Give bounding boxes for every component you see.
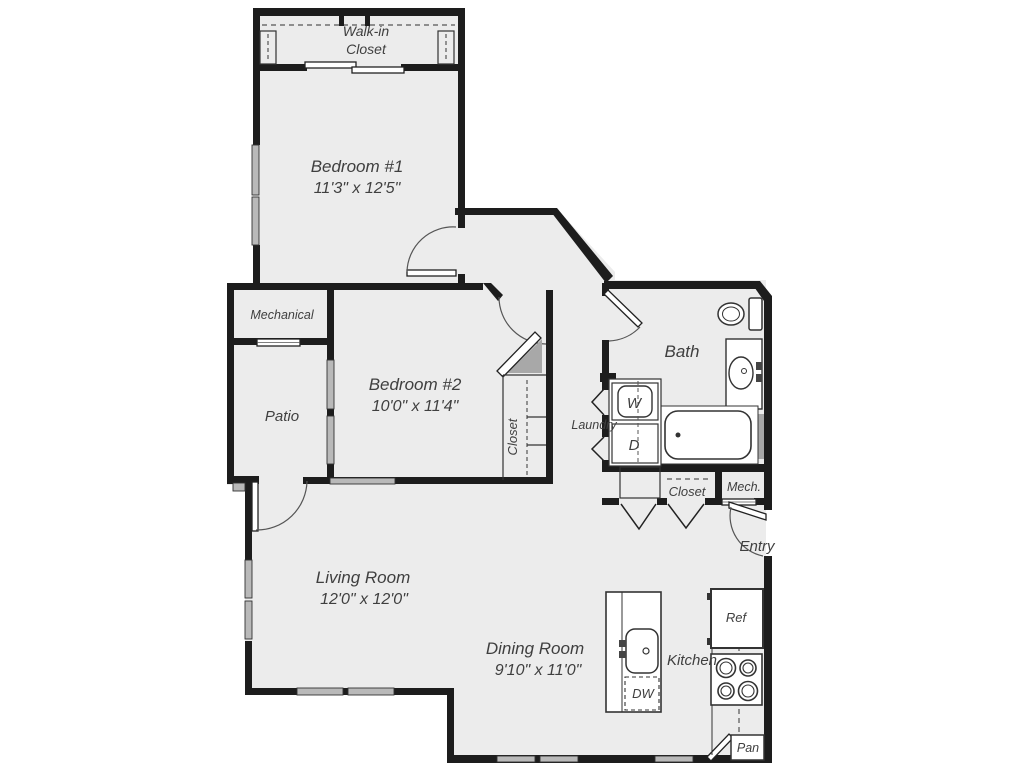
bedroom1-window-icon xyxy=(252,197,259,245)
washer-label: W xyxy=(627,395,643,412)
bathtub-icon xyxy=(660,406,758,464)
bedroom2-closet-label: Closet xyxy=(505,417,520,455)
mech-closet-label: Mech. xyxy=(727,480,761,494)
bath-label: Bath xyxy=(665,342,700,361)
hall-closet-label: Closet xyxy=(669,484,707,499)
floorplan-canvas: Walk-in Closet Bedroom #1 11'3" x 12'5" … xyxy=(0,0,1024,768)
apartment-floorplan: Walk-in Closet Bedroom #1 11'3" x 12'5" … xyxy=(0,0,1024,768)
living-room-window-icon xyxy=(245,601,252,639)
dining-room-label: Dining Room xyxy=(486,639,584,658)
bedroom2-patio-window-icon xyxy=(327,360,334,409)
dining-window-icon xyxy=(540,756,578,762)
bedroom1-window-icon xyxy=(252,145,259,195)
living-dining-kitchen-floor xyxy=(245,462,766,760)
living-room-window-icon xyxy=(245,560,252,598)
walk-in-closet-label-line2: Closet xyxy=(346,41,387,57)
pantry-label: Pan xyxy=(737,741,759,755)
refrigerator-label: Ref xyxy=(726,610,748,625)
laundry-label: Laundry xyxy=(571,418,617,432)
bathroom-sink-icon xyxy=(726,339,762,409)
dining-window-icon xyxy=(497,756,535,762)
bedroom2-label: Bedroom #2 xyxy=(369,375,462,394)
closet-sliding-door-icon xyxy=(352,67,404,73)
living-room-dims-label: 12'0" x 12'0" xyxy=(320,591,409,608)
dining-room-dims-label: 9'10" x 11'0" xyxy=(495,662,583,679)
living-room-label: Living Room xyxy=(316,568,411,587)
walk-in-closet-label-line1: Walk-in xyxy=(343,23,390,39)
bedroom2-patio-window-icon xyxy=(327,416,334,464)
dishwasher-label: DW xyxy=(632,686,655,701)
stove-icon xyxy=(711,654,762,705)
mechanical-label: Mechanical xyxy=(250,308,314,322)
kitchen-label: Kitchen xyxy=(667,652,717,669)
bedroom2-interior-window-icon xyxy=(330,478,395,484)
closet-sliding-door-icon xyxy=(305,62,356,68)
bedroom2-dims-label: 10'0" x 11'4" xyxy=(372,398,460,415)
dryer-label: D xyxy=(629,437,640,454)
bedroom1-label: Bedroom #1 xyxy=(311,157,404,176)
living-room-window-icon xyxy=(348,688,394,695)
kitchen-window-icon xyxy=(655,756,693,762)
patio-label: Patio xyxy=(265,408,299,425)
entry-label: Entry xyxy=(739,538,776,555)
bedroom1-dims-label: 11'3" x 12'5" xyxy=(314,180,402,197)
patio-corner-window-icon xyxy=(233,483,245,491)
living-room-window-icon xyxy=(297,688,343,695)
